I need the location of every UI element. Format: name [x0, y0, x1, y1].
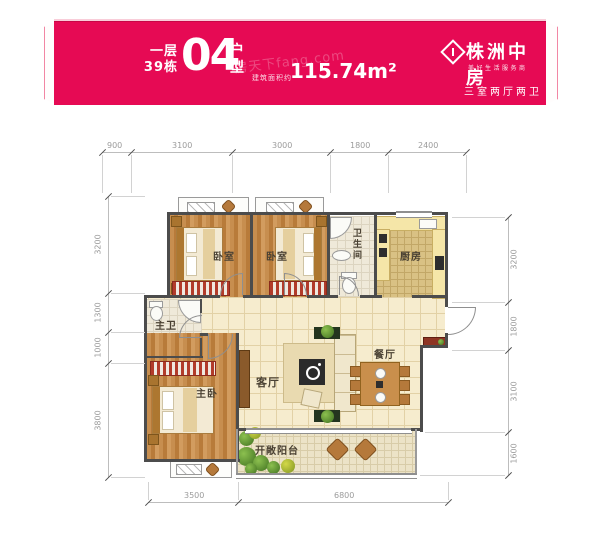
- dim-ext: [111, 332, 145, 333]
- area-prefix: 建筑面积约: [252, 73, 292, 83]
- dim-ext: [452, 217, 505, 218]
- bed-pillow: [303, 233, 314, 253]
- wall: [327, 212, 330, 298]
- wall: [445, 212, 448, 307]
- room-label-balcony: 开敞阳台: [255, 442, 299, 457]
- bed-pillow: [303, 256, 314, 276]
- dim-line-bottom: [148, 502, 448, 503]
- wall: [420, 345, 423, 432]
- door-leaf: [179, 337, 201, 338]
- room-label-kitchen: 厨房: [400, 248, 422, 263]
- ottoman: [300, 388, 322, 409]
- wall: [243, 295, 283, 298]
- wall: [412, 295, 448, 298]
- door-leaf: [448, 307, 475, 308]
- wall: [307, 295, 338, 298]
- door-leaf: [284, 273, 285, 295]
- room-label-master-bath: 主卫: [155, 317, 177, 332]
- dim-top-3: 1800: [350, 141, 370, 150]
- wall: [237, 428, 246, 431]
- wardrobe: [150, 361, 216, 376]
- dim-ext: [232, 155, 233, 193]
- dim-right-2: 3100: [510, 381, 519, 401]
- dim-ext: [238, 482, 239, 500]
- dim-ext: [388, 155, 389, 193]
- dim-bottom-1: 6800: [334, 491, 354, 500]
- bed-pillow: [162, 391, 174, 410]
- table-decor-dot: [318, 363, 321, 366]
- door-leaf: [242, 273, 243, 295]
- door-leaf: [339, 276, 340, 295]
- bed-pillow: [186, 233, 197, 253]
- floorplan-page: 房天下fang.com 一层 39栋 04 户 型 建筑面积约 115.74m²…: [0, 0, 600, 540]
- title-banner: 房天下fang.com 一层 39栋 04 户 型 建筑面积约 115.74m²…: [54, 19, 546, 105]
- sink: [332, 250, 351, 261]
- bed-pillow: [186, 256, 197, 276]
- kitchen-counter-left: [376, 229, 390, 281]
- plate: [375, 368, 386, 379]
- dining-table: [360, 362, 400, 406]
- dim-ext: [102, 155, 103, 193]
- nightstand: [316, 216, 327, 227]
- dim-ext: [111, 363, 145, 364]
- centerpiece: [376, 381, 383, 388]
- dim-top-4: 2400: [418, 141, 438, 150]
- room-label-bedroom-2: 卧室: [266, 248, 288, 263]
- room-label-dining: 餐厅: [374, 346, 396, 361]
- bed-headboard: [153, 387, 160, 433]
- dim-bottom-0: 3500: [184, 491, 204, 500]
- room-label-bathroom: 卫生间: [350, 228, 363, 261]
- planter-box: [314, 410, 340, 422]
- hall-step-cutout: [423, 348, 447, 429]
- wall: [411, 428, 423, 431]
- plant: [321, 410, 334, 423]
- shower: [330, 217, 352, 239]
- door-leaf: [208, 334, 209, 358]
- bed-headboard: [314, 228, 321, 280]
- wall: [200, 299, 202, 313]
- dim-ext: [452, 350, 505, 351]
- dining-chair: [399, 380, 410, 391]
- floor-building-label: 一层 39栋: [142, 44, 178, 76]
- dim-top-2: 3000: [272, 141, 292, 150]
- floor-cushion: [325, 437, 349, 461]
- wall: [144, 295, 147, 462]
- wall: [167, 212, 170, 298]
- dim-ext: [111, 293, 145, 294]
- wall: [374, 212, 377, 298]
- wall: [144, 459, 240, 462]
- floor-label: 一层: [142, 44, 178, 60]
- dim-right-1: 1800: [510, 316, 519, 336]
- balcony-sliding-window: [245, 428, 412, 434]
- brand-slogan: 美好生活服务商: [468, 63, 528, 72]
- bed-headboard: [177, 228, 184, 280]
- area-value: 115.74m²: [290, 59, 397, 83]
- dim-ext: [452, 302, 505, 303]
- dim-ext: [131, 155, 132, 193]
- dim-ext: [448, 482, 449, 500]
- dim-ext: [420, 475, 505, 476]
- dim-ext: [111, 477, 145, 478]
- room-label-bedroom-1: 卧室: [213, 248, 235, 263]
- dim-line-top: [102, 152, 466, 153]
- door-arc-entrance: [448, 307, 476, 335]
- window-seat: [176, 464, 202, 475]
- banner-fold-right: [544, 21, 558, 105]
- balcony-rail: [236, 429, 238, 475]
- wall: [420, 345, 448, 348]
- dining-chair: [399, 394, 410, 405]
- bed-blanket: [183, 388, 197, 432]
- dim-left-3: 3800: [94, 410, 103, 430]
- building-label: 39栋: [142, 60, 178, 76]
- table-decor: [306, 366, 320, 380]
- dim-left-1: 1300: [94, 302, 103, 322]
- nightstand: [148, 375, 159, 386]
- balcony-rail-front: [236, 473, 417, 479]
- bay-cushion: [205, 462, 221, 478]
- kitchen-sink: [419, 219, 437, 229]
- brand-tagline: 三室两厅两卫: [464, 83, 542, 98]
- dim-ext: [111, 196, 145, 197]
- dim-top-0: 900: [107, 141, 122, 150]
- bed-pillow: [162, 411, 174, 430]
- dim-ext: [466, 155, 467, 193]
- floor-cushion: [353, 437, 377, 461]
- kitchen-window: [396, 211, 432, 218]
- dining-chair: [399, 366, 410, 377]
- dim-ext: [425, 432, 505, 433]
- stove-hob: [379, 234, 387, 243]
- stove-hob: [379, 248, 387, 257]
- unit-type-label: 户 型: [230, 43, 245, 77]
- balcony-rail: [415, 429, 417, 475]
- wall: [200, 338, 202, 358]
- dim-line-left: [108, 196, 109, 478]
- dim-left-0: 3200: [94, 234, 103, 254]
- dim-ext: [148, 482, 149, 500]
- dim-ext: [330, 155, 331, 193]
- appliance: [435, 256, 444, 270]
- tv-cabinet: [239, 350, 250, 408]
- plant: [281, 459, 295, 473]
- nightstand: [148, 434, 159, 445]
- wall: [144, 295, 220, 298]
- nightstand: [171, 216, 182, 227]
- coffee-table: [299, 359, 325, 385]
- dim-right-0: 3200: [510, 249, 519, 269]
- wall: [144, 356, 203, 358]
- plant: [321, 325, 334, 338]
- room-label-master-bedroom: 主卧: [196, 385, 218, 400]
- room-label-living: 客厅: [256, 374, 280, 390]
- wall: [250, 212, 253, 298]
- plate: [375, 392, 386, 403]
- brand-logo-icon: [444, 43, 462, 61]
- wall: [360, 295, 382, 298]
- planter-box: [314, 327, 340, 339]
- dim-right-3: 1600: [510, 443, 519, 463]
- dim-top-1: 3100: [172, 141, 192, 150]
- dim-left-2: 1000: [94, 337, 103, 357]
